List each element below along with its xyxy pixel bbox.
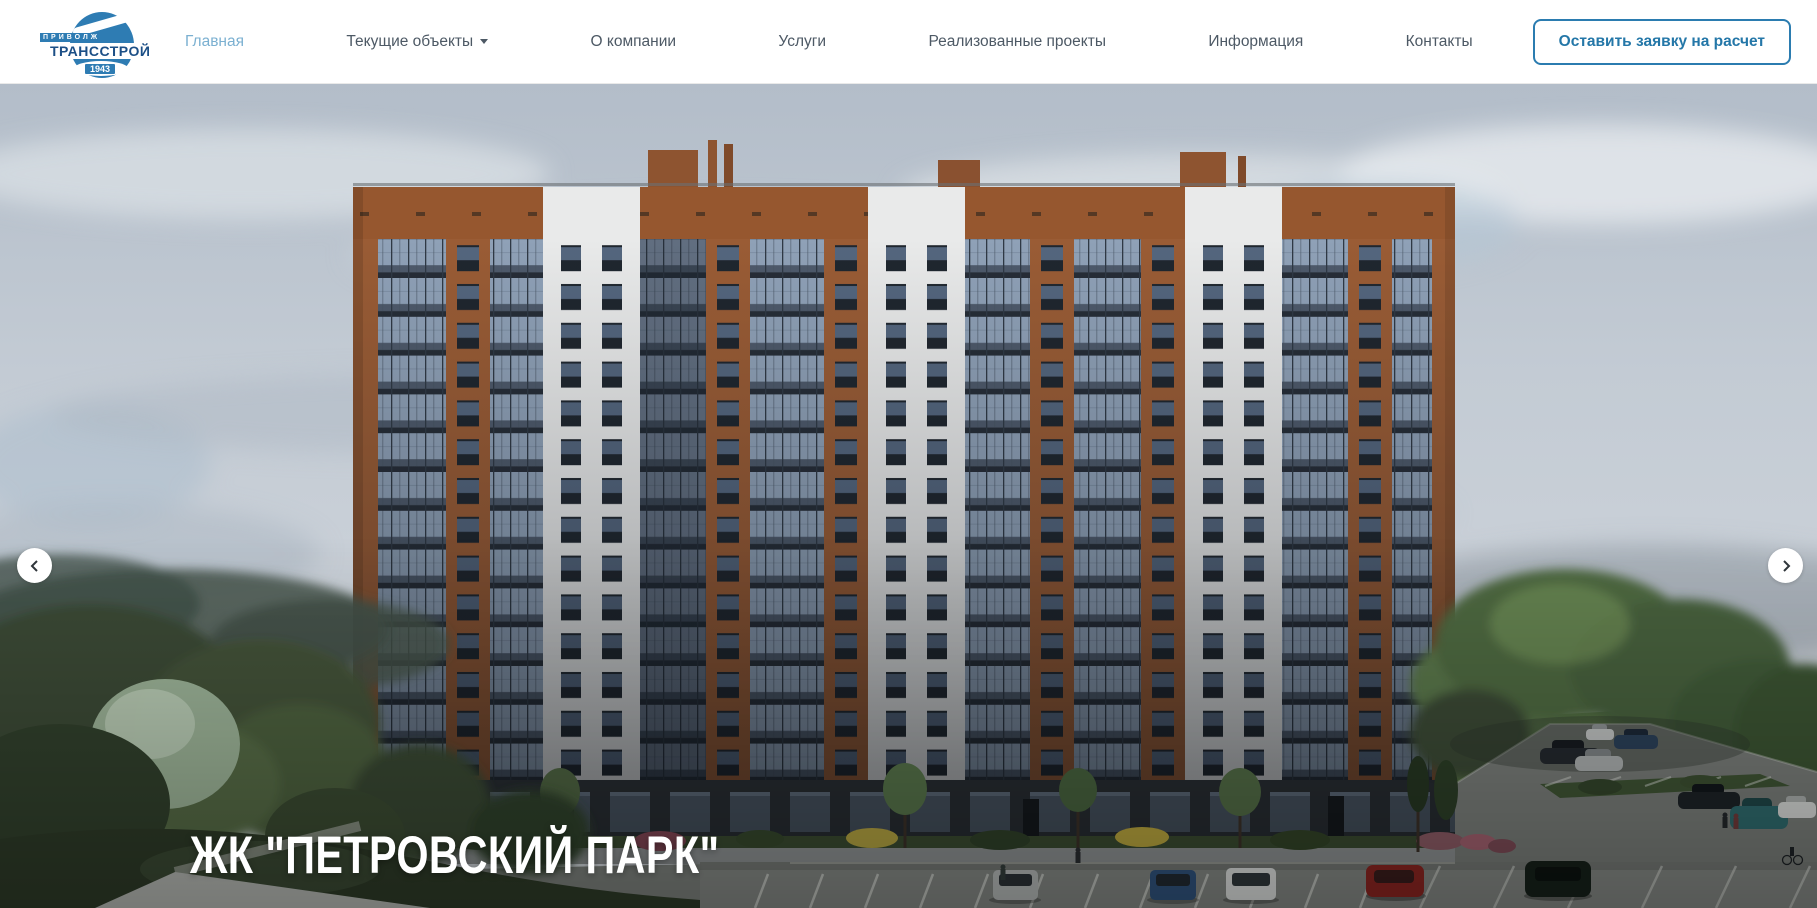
chevron-right-icon [1779,559,1793,573]
top-navigation-bar: ПРИВОЛЖ ТРАНССТРОЙ 1943 Главная Текущие … [0,0,1817,84]
chevron-left-icon [28,559,42,573]
nav-item-current-objects[interactable]: Текущие объекты [346,33,488,51]
nav-item-about[interactable]: О компании [591,33,677,51]
request-quote-button[interactable]: Оставить заявку на расчет [1533,19,1791,65]
nav-item-contacts[interactable]: Контакты [1406,33,1473,51]
hero-image [0,84,1817,908]
nav-item-home[interactable]: Главная [185,33,244,51]
carousel-prev-button[interactable] [17,548,52,583]
nav-item-services[interactable]: Услуги [778,33,826,51]
logo-text-year: 1943 [84,63,116,75]
logo-text-privolzh: ПРИВОЛЖ [40,33,103,42]
company-logo[interactable]: ПРИВОЛЖ ТРАНССТРОЙ 1943 [14,3,149,81]
hero-title: ЖК "ПЕТРОВСКИЙ ПАРК" [190,825,719,886]
bottom-vignette [0,84,1817,908]
chevron-down-icon [480,39,488,44]
main-menu: Главная Текущие объекты О компании Услуг… [185,33,1473,51]
nav-item-completed-projects[interactable]: Реализованные проекты [928,33,1105,51]
nav-item-information[interactable]: Информация [1208,33,1303,51]
carousel-next-button[interactable] [1768,548,1803,583]
hero-slider: ЖК "ПЕТРОВСКИЙ ПАРК" [0,84,1817,908]
logo-text-transstroy: ТРАНССТРОЙ [48,43,152,59]
